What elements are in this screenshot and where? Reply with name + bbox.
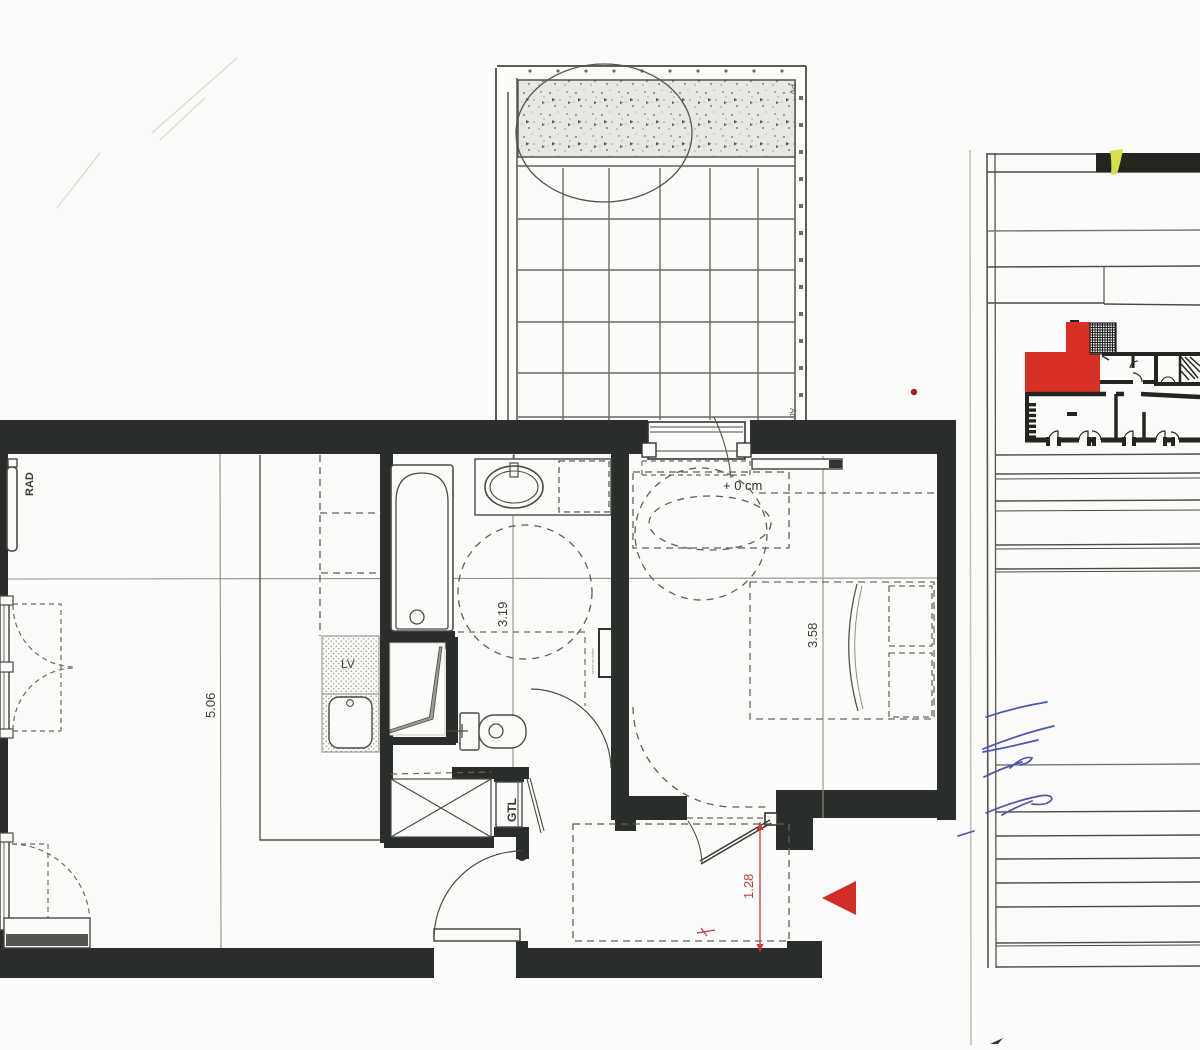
svg-text:seche serviettes: seche serviettes [591, 648, 595, 674]
svg-text:3.19: 3.19 [495, 602, 510, 627]
svg-text:1.28: 1.28 [741, 874, 756, 899]
svg-text:Ad: Ad [788, 408, 797, 418]
svg-text:RAD: RAD [24, 472, 36, 496]
svg-text:3.58: 3.58 [805, 623, 820, 648]
svg-text:+ 0 cm: + 0 cm [723, 478, 762, 493]
svg-text:GTL: GTL [505, 798, 519, 822]
svg-text:5.06: 5.06 [203, 693, 218, 718]
svg-text:LV: LV [341, 657, 355, 671]
svg-text:PV: PV [788, 84, 797, 95]
